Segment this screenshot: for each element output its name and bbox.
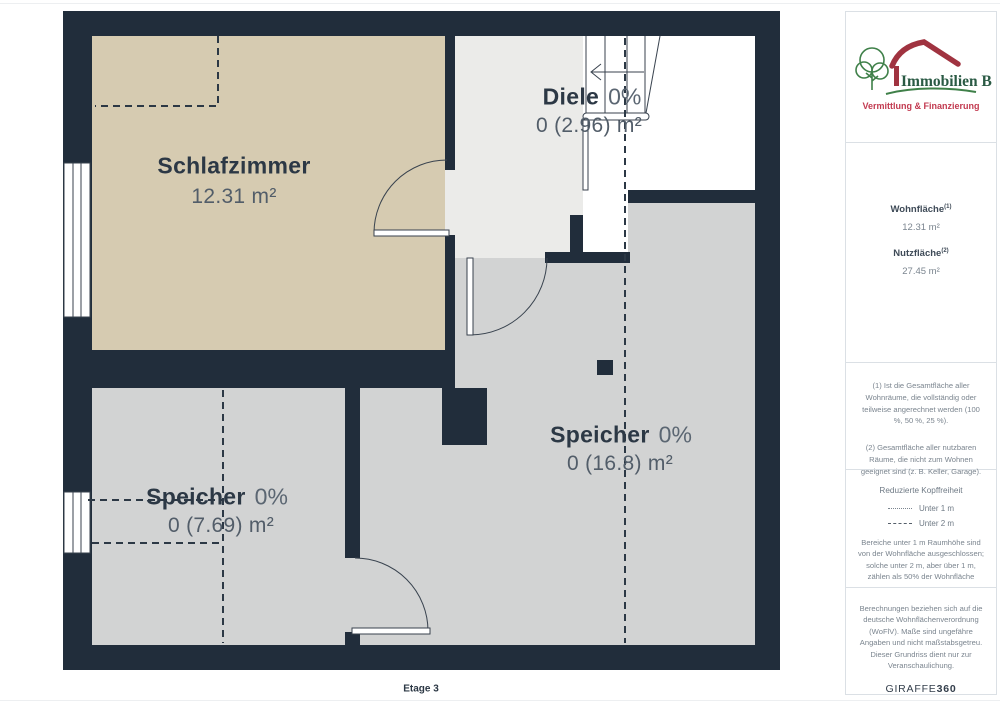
agency-logo: Immobilien Bart Vermittlung & Finanzieru… [845,11,997,143]
footnote-2: (2) Gesamtfläche aller nutzbaren Räume, … [859,442,983,477]
dotted-line-icon [888,508,912,509]
roof-icon [892,42,958,66]
label-schlafzimmer: Schlafzimmer [157,153,310,180]
nutzflaeche-value: 27.45 m² [846,266,996,277]
legend-title: Reduzierte Kopffreiheit [857,486,985,495]
area-summary: Wohnfläche(1) 12.31 m² Nutzfläche(2) 27.… [845,142,997,363]
window-left-storage [64,492,90,553]
floorplan-drawing [63,11,780,670]
chimney-icon [894,66,899,86]
agency-logo-icon: Immobilien Bart Vermittlung & Finanzieru… [850,26,992,128]
headroom-legend: Reduzierte Kopffreiheit Unter 1 m Unter … [845,469,997,588]
swoosh-underline [886,88,976,94]
page-bottom-divider [0,700,1000,701]
footnote-1: (1) Ist die Gesamtfläche aller Wohnräume… [859,380,983,427]
agency-name: Immobilien Bart [901,73,992,90]
page-top-divider [0,3,1000,4]
info-sidebar: Immobilien Bart Vermittlung & Finanzieru… [845,12,997,695]
wohnflaeche-value: 12.31 m² [846,222,996,233]
dashed-line-icon [888,523,912,524]
chimney-column [597,360,613,375]
legend-under-1m: Unter 1 m [857,504,985,513]
legend-under-2m: Unter 2 m [857,519,985,528]
area-speicher-right: 0 (16.8) m² [567,452,673,476]
label-diele: Diele0% [543,84,642,111]
area-schlafzimmer: 12.31 m² [191,185,276,209]
area-speicher-left: 0 (7.69) m² [168,514,274,538]
wohnflaeche-label: Wohnfläche(1) [846,204,996,215]
disclaimer-text: Berechnungen beziehen sich auf die deuts… [857,603,985,671]
tree-icon [856,48,888,90]
label-speicher-right: Speicher0% [550,422,692,449]
room-speicher-right [628,203,755,262]
footnotes: (1) Ist die Gesamtfläche aller Wohnräume… [845,362,997,470]
nutzflaeche-label: Nutzfläche(2) [846,248,996,259]
agency-tagline: Vermittlung & Finanzierung [862,101,979,111]
giraffe360-brand: GIRAFFE360 [857,683,985,695]
room-diele [455,36,583,258]
floor-label: Etage 3 [403,684,439,695]
legend-description: Bereiche unter 1 m Raumhöhe sind von der… [857,537,985,583]
window-left-bedroom [64,163,90,317]
disclaimer: Berechnungen beziehen sich auf die deuts… [845,587,997,695]
label-speicher-left: Speicher0% [146,484,288,511]
area-diele: 0 (2.96) m² [536,114,642,138]
